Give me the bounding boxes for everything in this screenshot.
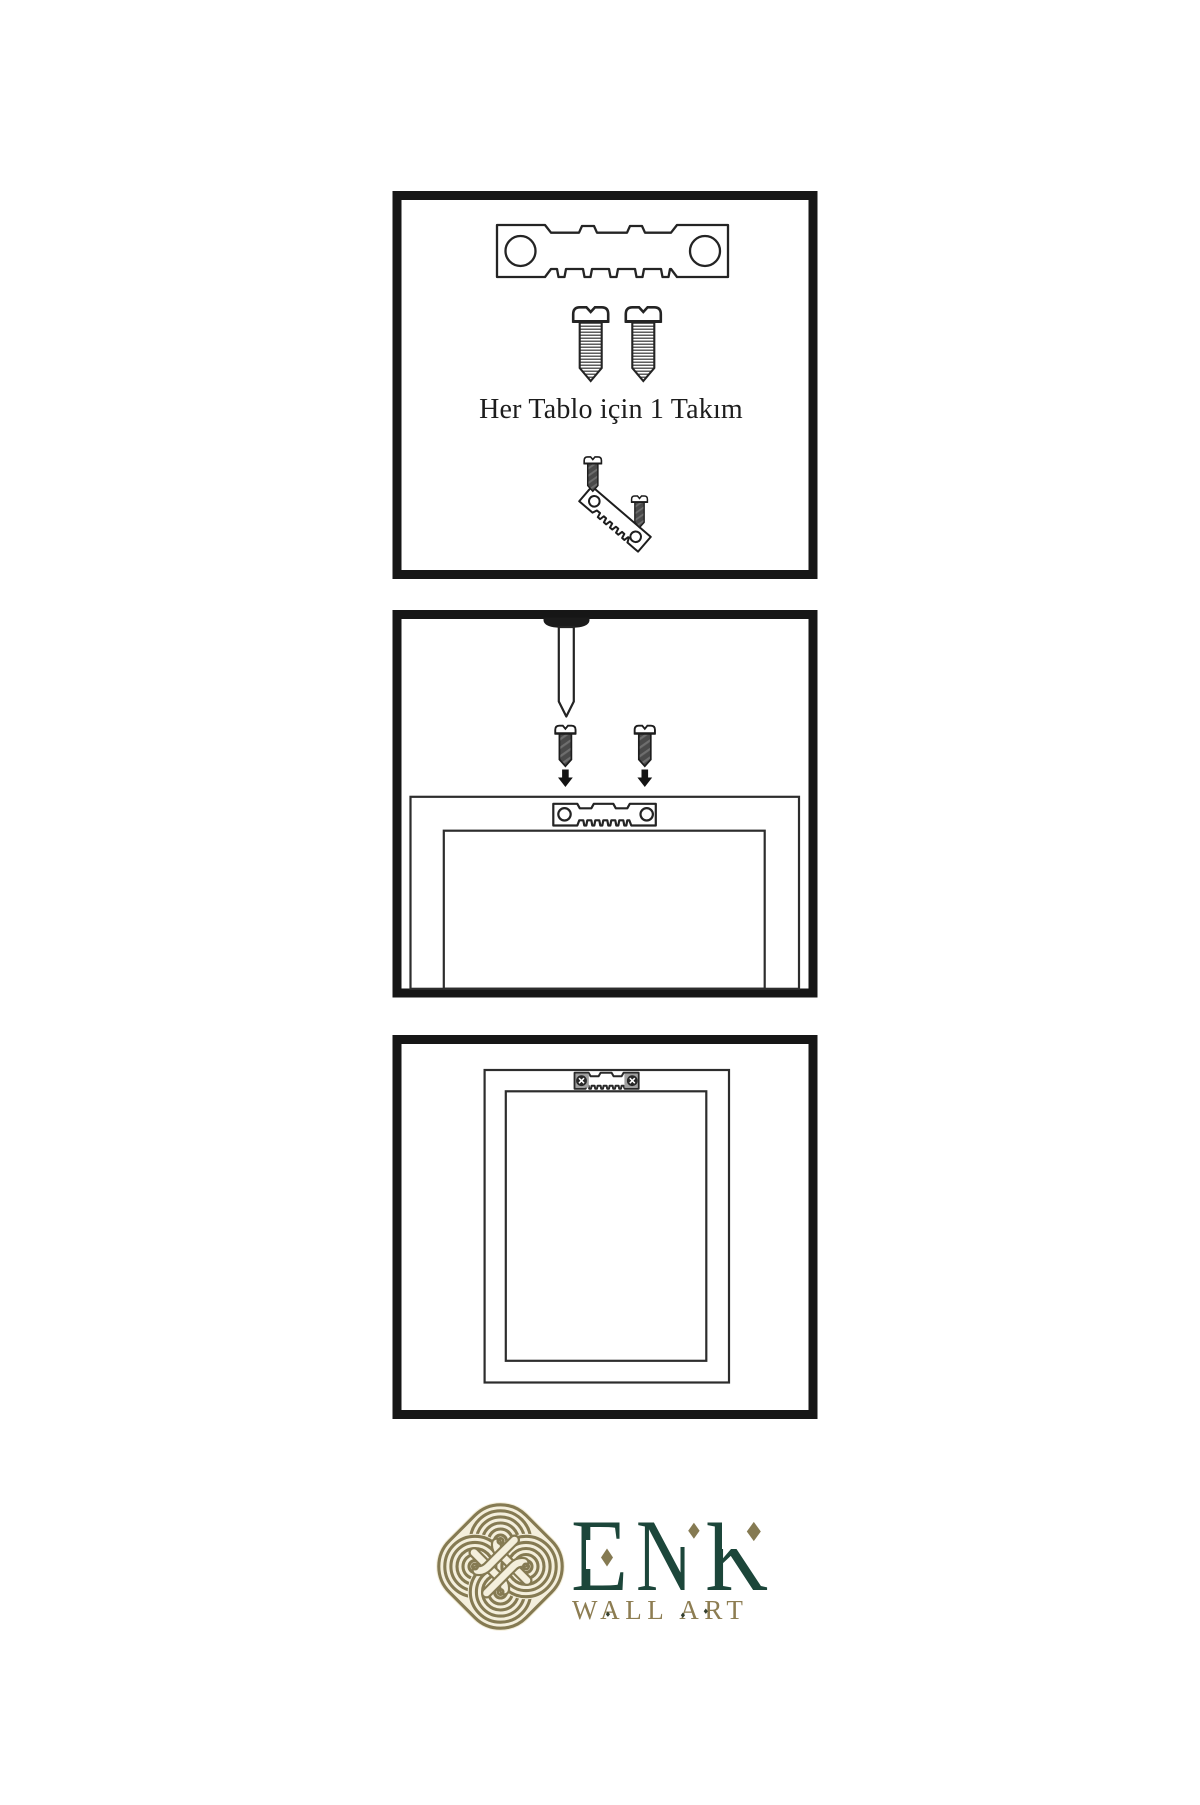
svg-text:Her Tablo için 1 Takım: Her Tablo için 1 Takım: [479, 394, 743, 425]
svg-text:WALL ART: WALL ART: [572, 1595, 748, 1625]
